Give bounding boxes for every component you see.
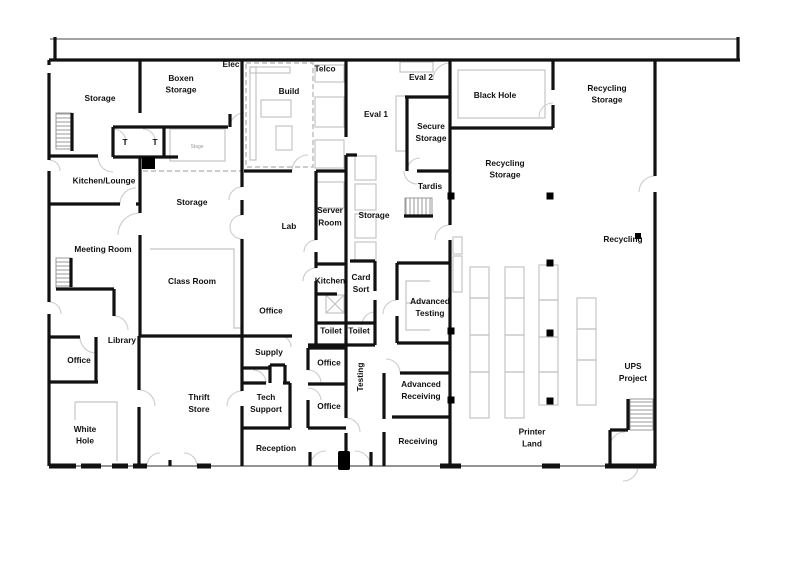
room-label-secure-storage: Storage (416, 133, 447, 143)
solid-block (142, 157, 155, 169)
room-label-elec: Elec (222, 59, 239, 69)
build-bench (250, 67, 256, 160)
room-label-ups-project: Project (619, 373, 647, 383)
printer-rack (470, 335, 489, 372)
room-label-recycling-storage-mid: Storage (490, 170, 521, 180)
room-label-eval1: Eval 1 (364, 109, 388, 119)
room-label-meeting-room: Meeting Room (74, 244, 131, 254)
room-label-office-2: Office (317, 358, 341, 368)
room-label-advanced-receiving: Advanced (401, 379, 441, 389)
storage-rack (355, 184, 376, 210)
wall-rack (453, 256, 462, 292)
room-label-recycling-storage-ne: Storage (592, 95, 623, 105)
room-label-printer-land: Land (522, 439, 542, 449)
column (448, 328, 455, 335)
room-label-ups-project: UPS (624, 361, 642, 371)
stairs-west (56, 258, 71, 288)
stairs-northwest (56, 113, 72, 149)
room-label-toilet-closet-2: T (152, 137, 157, 147)
room-label-tech-support: Support (250, 404, 282, 414)
printer-rack (577, 360, 596, 405)
room-label-printer-land: Printer (519, 427, 547, 437)
room-label-recycling-storage-ne: Recycling (587, 83, 626, 93)
room-label-black-hole: Black Hole (474, 90, 517, 100)
room-label-card-sort: Sort (353, 284, 370, 294)
room-label-lab: Lab (282, 221, 297, 231)
room-label-recycling-storage-mid: Recycling (485, 158, 524, 168)
entrance-door-leaf (338, 451, 350, 470)
secure-storage-rack (396, 96, 407, 151)
printer-rack (505, 372, 524, 418)
wall-rack (453, 237, 462, 254)
room-label-server-room: Room (318, 218, 342, 228)
printer-rack (577, 329, 596, 360)
room-label-eval2: Eval 2 (409, 72, 433, 82)
room-label-boxen-storage: Storage (166, 85, 197, 95)
printer-rack (539, 337, 558, 372)
printer-rack (539, 265, 558, 300)
stairs-ups (630, 399, 653, 430)
room-label-white-hole: White (74, 424, 97, 434)
column (547, 330, 554, 337)
columns-blocks (142, 157, 641, 470)
eval2-bench (400, 62, 433, 72)
printer-rack (505, 335, 524, 372)
room-label-toilet-1: Toilet (320, 326, 342, 336)
column (547, 193, 554, 200)
column (448, 193, 455, 200)
room-label-secure-storage: Secure (417, 121, 445, 131)
room-label-server-room: Server (317, 205, 344, 215)
printer-rack (505, 267, 524, 298)
janitor-fixture-x (326, 295, 344, 313)
room-label-toilet-2: Toilet (348, 326, 370, 336)
room-label-storage-northwest: Storage (85, 93, 116, 103)
column (547, 260, 554, 267)
column (547, 398, 554, 405)
room-label-reception: Reception (256, 443, 296, 453)
room-label-telco: Telco (314, 64, 335, 74)
room-label-tech-support: Tech (257, 392, 276, 402)
room-label-receiving: Receiving (398, 436, 437, 446)
room-label-toilet-closet-1: T (122, 137, 127, 147)
telco-rack (315, 140, 344, 168)
room-label-library: Library (108, 335, 137, 345)
room-label-white-hole: Hole (76, 436, 94, 446)
stairs-tardis (405, 198, 432, 215)
storage-rack (355, 242, 376, 260)
printer-rack (470, 267, 489, 298)
room-label-recycling: Recycling (603, 234, 642, 244)
room-labels: Storage Boxen Storage Elec Build Telco E… (67, 59, 647, 453)
room-label-testing: Testing (355, 363, 365, 392)
classroom-partition (150, 249, 242, 328)
room-label-office-3: Office (317, 401, 341, 411)
floor-plan-page: Storage Boxen Storage Elec Build Telco E… (0, 0, 800, 566)
room-label-advanced-testing: Advanced (410, 296, 450, 306)
build-bench (261, 100, 291, 117)
room-label-card-sort: Card (352, 272, 371, 282)
room-label-storage-center: Storage (359, 210, 390, 220)
room-label-class-room: Class Room (168, 276, 216, 286)
room-label-stage: Stage (190, 144, 203, 150)
build-bench (276, 126, 292, 150)
room-label-boxen-storage: Boxen (168, 73, 193, 83)
room-label-build: Build (279, 86, 300, 96)
room-label-thrift-store: Store (188, 404, 210, 414)
interior-walls-east (170, 60, 628, 466)
printer-rack (505, 298, 524, 335)
printer-rack (470, 298, 489, 335)
room-label-advanced-testing: Testing (416, 308, 445, 318)
telco-rack (315, 97, 344, 127)
room-label-office-west: Office (67, 355, 91, 365)
printer-rack (470, 372, 489, 418)
storage-rack (355, 156, 376, 180)
column (448, 397, 455, 404)
room-label-kitchen: Kitchen (315, 276, 345, 286)
room-label-supply: Supply (255, 347, 283, 357)
room-label-thrift-store: Thrift (188, 392, 209, 402)
room-label-kitchen-lounge: Kitchen/Lounge (73, 176, 136, 186)
floor-plan-svg: Storage Boxen Storage Elec Build Telco E… (0, 0, 800, 566)
room-label-storage-midwest: Storage (177, 197, 208, 207)
room-label-office-1: Office (259, 306, 283, 316)
room-label-tardis: Tardis (418, 181, 443, 191)
room-label-advanced-receiving: Receiving (401, 391, 440, 401)
printer-rack (577, 298, 596, 329)
